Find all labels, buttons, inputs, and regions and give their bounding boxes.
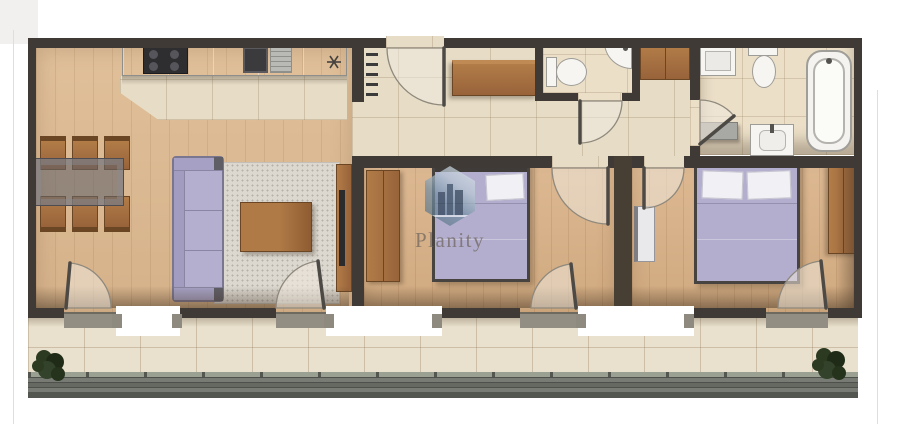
wc-door-swing xyxy=(580,101,622,143)
living-balcony-door1-swing xyxy=(66,263,111,308)
living-balcony-door2-swing xyxy=(276,261,324,308)
bedroom2-balcony-door-swing xyxy=(778,261,826,308)
plant-left xyxy=(32,350,65,381)
bedroom1-door-swing xyxy=(552,168,608,224)
entrance-door-swing xyxy=(387,48,444,105)
bedroom1-balcony-door-swing xyxy=(531,264,576,308)
vent-icon xyxy=(327,56,341,68)
bedroom2-door-swing xyxy=(644,168,684,208)
overlay xyxy=(0,0,900,432)
plant-right xyxy=(812,348,846,380)
floor-plan: Planity xyxy=(0,0,900,432)
